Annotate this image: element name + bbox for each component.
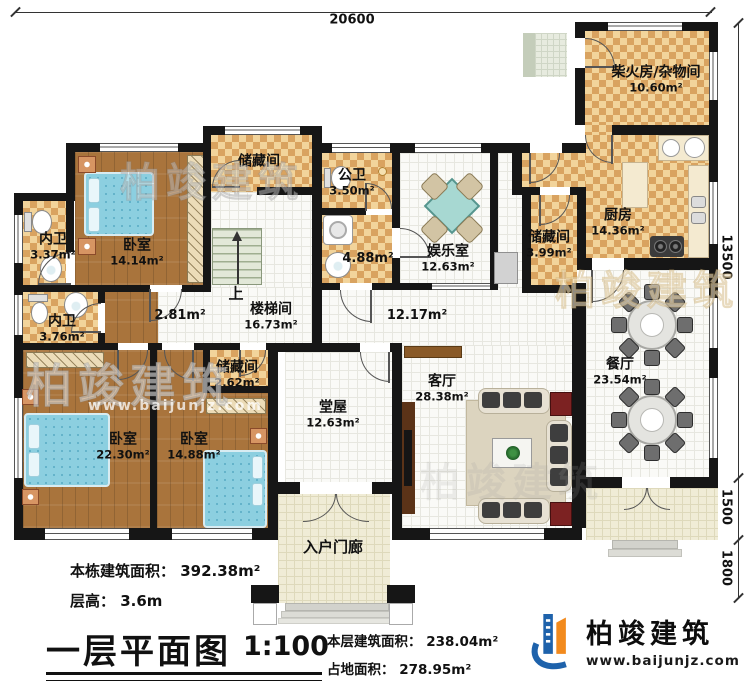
door-leaf [370,290,372,323]
wardrobe [206,398,266,414]
sink-basin [691,212,706,224]
room-label-bedroom-1: 卧室14.14m² [110,238,163,269]
room-area: 12.63m² [421,261,474,275]
sofa-cushion [482,502,500,518]
room-label-living: 客厅28.38m² [415,374,468,405]
side-table [550,502,572,526]
porch-step [278,618,396,624]
dimension-line [738,23,739,478]
door-opening [530,143,562,153]
nightstand [78,156,96,173]
plan-title: 一层平面图 [46,624,231,673]
wall [322,208,366,215]
room-area: 28.38m² [415,391,468,405]
room-name: 卧室 [96,432,149,449]
room-label-hall-small: 2.81m² [154,308,205,324]
tv [404,430,412,486]
room-label-stairwell: 楼梯间16.73m² [244,302,297,333]
sofa-cushion [503,502,521,518]
room-name: 内卫 [30,232,75,249]
room-label-ensuite-2: 内卫3.76m² [39,314,84,345]
dining-chair [611,317,627,333]
sink-basin [691,196,706,208]
wall [257,187,312,195]
kitchen-pass-floor [585,125,612,135]
room-area: 3.50m² [329,185,374,199]
door-leaf [529,153,531,184]
room-area: 3.37m² [30,249,75,263]
room-label-storage-right: 储藏间3.99m² [526,230,571,261]
room-area: 23.54m² [593,374,646,388]
window [45,528,129,540]
wall [392,143,400,290]
dining-table-top [640,313,664,337]
room-area: 2.81m² [154,308,205,324]
dining-chair [644,445,660,461]
sofa-cushion [482,392,500,408]
wall [577,187,586,270]
company-logo: 柏竣建筑 www.baijunjz.com [526,608,740,672]
room-name: 娱乐室 [421,244,474,261]
room-label-bedroom-2: 卧室22.30m² [96,432,149,463]
stove-burner-icon [654,240,667,253]
logo-text: 柏竣建筑 www.baijunjz.com [586,612,740,669]
logo-name: 柏竣建筑 [586,612,740,651]
room-area: 14.88m² [167,449,220,463]
toilet-bowl-icon [32,210,52,234]
stove-burner-icon [669,240,682,253]
room-label-storage-top: 储藏间 [238,154,280,171]
nightstand [250,428,267,444]
room-label-firewood: 柴火房/杂物间10.60m² [611,65,700,96]
door-opening [118,343,148,350]
plant-icon [506,446,520,460]
wardrobe [26,352,104,368]
console-table [404,346,462,358]
porch-step [285,603,389,611]
nightstand [22,389,39,405]
door-opening [540,187,570,195]
window [100,143,178,152]
wall [392,343,402,540]
logo-url: www.baijunjz.com [586,653,740,669]
room-area: 10.60m² [611,82,700,96]
door-leaf [539,195,541,226]
sofa-cushion [550,446,568,464]
wall [203,126,211,292]
dining-chair [677,317,693,333]
stats-left: 本栋建筑面积： 392.38m² 层高： 3.6m [70,560,260,611]
pillow [88,178,100,203]
window [14,295,23,335]
room-name: 入户门廊 [303,538,363,556]
dimension-top: 20600 [329,13,374,28]
door-leaf [388,352,390,383]
door-leaf [212,186,240,188]
logo-icon [526,608,578,672]
room-name: 储藏间 [526,230,571,247]
toilet-tank [28,294,48,302]
washer-door-icon [329,221,347,239]
window [608,22,682,31]
room-area: 3.99m² [526,247,571,261]
door-opening [162,343,194,350]
window [709,182,718,244]
porch-pillar [387,585,415,603]
door-opening [300,482,372,494]
dimension-right: 13500 [719,234,734,279]
wall [572,283,586,528]
door-leaf [117,350,119,381]
wall [268,343,278,540]
door-opening [240,343,266,350]
porch-step [608,549,682,557]
room-label-kitchen: 厨房14.36m² [591,208,644,239]
room-area: 14.36m² [591,225,644,239]
room-label-storage-small: 储藏间2.62m² [214,360,259,391]
room-name: 柴火房/杂物间 [611,65,700,82]
wall [312,126,322,345]
stats-right: 本层建筑面积： 238.04m² 占地面积： 278.95m² [327,630,498,678]
window [432,283,490,290]
sink-basin [662,139,680,157]
stairs-up-label: 上 [228,283,243,304]
stairs-arrow [237,241,239,284]
door-opening [622,477,670,488]
porch-step [612,540,678,549]
toilet-tank [24,212,32,232]
window [14,398,23,478]
stairs-arrow-head [232,231,242,241]
wall [66,143,75,201]
window [415,143,481,153]
pillow [252,456,263,479]
sofa-cushion [524,502,542,518]
room-area: 12.63m² [306,417,359,431]
room-label-bedroom-3: 卧室14.88m² [167,432,220,463]
floor-height: 层高： 3.6m [70,590,260,611]
window [709,298,718,348]
pillow [28,452,40,477]
wall [150,350,157,528]
dining-table-top [640,408,664,432]
room-name: 餐厅 [593,357,646,374]
dimension-right-bottom: 1800 [719,550,734,586]
room-name: 堂屋 [306,400,359,417]
window [430,528,544,540]
total-building-area: 本栋建筑面积： 392.38m² [70,560,260,581]
porch-step [281,611,393,618]
room-area: 3.76m² [39,331,84,345]
room-name: 公卫 [329,168,374,185]
pillow [28,424,40,449]
wardrobe [187,155,204,283]
door-leaf [591,270,593,303]
footprint-area: 占地面积： 278.95m² [327,658,498,678]
dining-chair [644,284,660,300]
door-leaf [38,283,71,285]
pillow [252,483,263,506]
room-label-main-hall: 堂屋12.63m² [306,400,359,431]
room-label-laundry: 4.88m² [342,251,393,267]
room-name: 厨房 [591,208,644,225]
window [14,215,23,263]
door-opening [575,38,585,68]
title-underline [46,672,322,681]
dining-chair [677,412,693,428]
floor-plan: 卧室14.14m² 内卫3.37m² 内卫3.76m² 卧室22.30m² 卧室… [0,0,750,691]
room-area: 16.73m² [244,319,297,333]
room-label-public-bath: 公卫3.50m² [329,168,374,199]
door-opening [360,343,390,352]
room-area: 12.17m² [387,308,447,324]
window [332,143,390,153]
room-label-porch: 入户门廊 [303,538,363,556]
window [172,528,252,540]
room-name: 内卫 [39,314,84,331]
room-name: 卧室 [167,432,220,449]
pillar-base [389,603,413,625]
dimension-right-mid: 1500 [719,489,734,525]
window [709,52,718,100]
room-name: 卧室 [110,238,163,255]
wall [612,125,709,135]
side-table [550,392,572,416]
sofa-cushion [550,468,568,486]
fridge [494,252,518,284]
sink-basin [684,137,705,158]
nightstand [78,238,96,255]
door-leaf [192,350,194,381]
wall [14,193,74,201]
kitchen-counter [622,162,648,208]
room-label-ensuite-1: 内卫3.37m² [30,232,75,263]
window [225,126,300,135]
room-area: 14.14m² [110,255,163,269]
window [709,378,718,458]
patio-steps [523,33,535,77]
door-opening [592,258,624,270]
room-name: 客厅 [415,374,468,391]
room-name: 楼梯间 [244,302,297,319]
room-label-hall-main: 12.17m² [387,308,447,324]
room-area: 2.62m² [214,377,259,391]
sofa-cushion [550,424,568,442]
floor-drain-icon [378,167,387,176]
door-opening [340,283,372,290]
room-label-recreation: 娱乐室12.63m² [421,244,474,275]
plan-scale: 1:100 [243,631,329,662]
door-leaf [611,135,613,164]
wall [522,285,586,293]
dining-chair [611,412,627,428]
room-label-dining: 餐厅23.54m² [593,357,646,388]
room-area: 4.88m² [342,251,393,267]
room-name: 储藏间 [214,360,259,377]
door-leaf [149,289,151,322]
pillow [88,207,100,232]
sofa-cushion [503,392,521,408]
room-name: 储藏间 [238,154,280,171]
nightstand [22,489,39,505]
this-floor-area: 本层建筑面积： 238.04m² [327,630,498,650]
room-area: 22.30m² [96,449,149,463]
sofa-cushion [524,392,542,408]
